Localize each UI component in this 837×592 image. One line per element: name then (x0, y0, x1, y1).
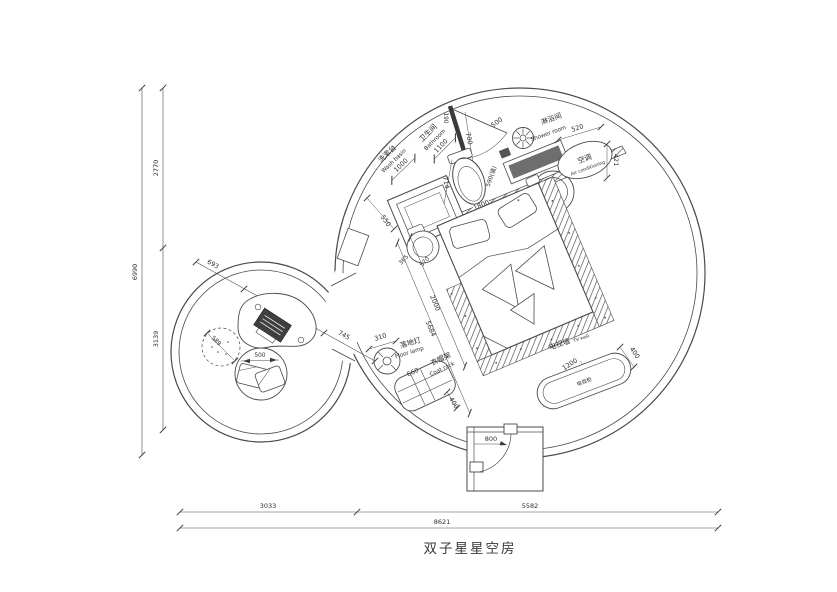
floor-plan-svg: 6990 2770 3139 3033 5582 8621 693 1166 7… (0, 0, 837, 592)
door-post (504, 424, 517, 434)
dim-bottom-right: 5582 (522, 502, 539, 510)
wall-590-label: 590(墙) (484, 165, 499, 188)
entrance-vestibule (467, 424, 543, 491)
dim-365: 365 (398, 254, 410, 266)
dim-800: 800 (485, 435, 497, 443)
left-dimension-lines (139, 85, 166, 458)
tv-cabinet: 电视柜 (533, 349, 636, 414)
floor-lamp (374, 348, 400, 374)
washbasin-label: 洗漱台 Wash basin 1000 (371, 136, 420, 184)
drawing-title: 双子星星空房 (424, 541, 517, 557)
wall-notch (337, 228, 369, 266)
dim-upper-height: 2770 (152, 160, 160, 177)
dim-520: 520 (570, 122, 584, 133)
dim-coat-400: 400 (447, 396, 460, 411)
dim-190: 190 (442, 112, 448, 123)
shower-label-cn: 淋浴间 (539, 111, 562, 127)
shower-label-en: Shower room (530, 125, 567, 143)
dim-shower-door-500: 500 (489, 115, 504, 129)
dim-2000: 2000 (428, 294, 442, 312)
dim-310: 310 (373, 331, 387, 342)
dim-total-height: 6990 (131, 264, 139, 281)
lamp-label-en: Floor lamp (395, 346, 426, 361)
dim-bottom-left: 3033 (260, 502, 277, 510)
floor-plan-canvas: 6990 2770 3139 3033 5582 8621 693 1166 7… (0, 0, 837, 592)
dim-line-310 (369, 341, 396, 349)
dim-cushion-500: 500 (254, 353, 265, 359)
dim-700: 700 (464, 132, 474, 146)
dim-5684: 5684 (424, 320, 438, 338)
dim-bottom-total: 8621 (434, 518, 451, 526)
pouf-dashed (202, 328, 240, 366)
dim-421: 421 (612, 154, 620, 166)
drain-block (499, 147, 511, 158)
dim-550: 550 (379, 213, 393, 228)
door-post (470, 462, 483, 472)
dim-tv-400: 400 (628, 345, 642, 360)
dim-lower-height: 3139 (152, 331, 160, 348)
dim-pouf-589: 589 (210, 335, 222, 347)
